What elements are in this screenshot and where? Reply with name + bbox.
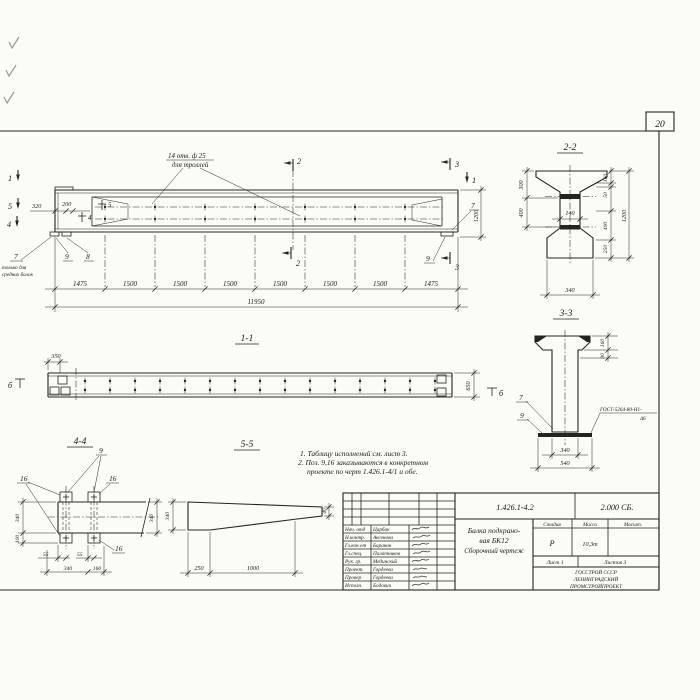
dim-label: 1500 — [173, 280, 188, 288]
dim-label: 250 — [603, 245, 609, 254]
dim-label: 1200 — [621, 209, 628, 222]
dim-label: 250 — [194, 565, 204, 572]
dim-label: 340 — [559, 447, 570, 454]
drawing-title-line: вая БК12 — [479, 536, 508, 545]
margin-check-marks — [4, 37, 19, 103]
position-number: 9 — [520, 411, 524, 420]
position-number: 8 — [86, 252, 90, 261]
position-callout-9: 9 — [517, 411, 542, 433]
section-marker-label: 4 — [88, 214, 92, 222]
section-marker-label: 1 — [8, 174, 12, 183]
dim-label: 30 — [600, 353, 606, 360]
position-number: 7 — [471, 201, 475, 210]
section-marker-label: 1 — [472, 176, 476, 185]
section-view-4-4: 4-4 9 16 — [15, 437, 162, 576]
signature-name: Баранов — [372, 543, 392, 549]
position-number: 7 — [519, 393, 523, 402]
section-marker-label: 5 — [8, 202, 12, 211]
org-name-line: ПРОМСТРОЙПРОЕКТ — [569, 582, 623, 590]
position-number: 7 — [14, 252, 18, 261]
position-callout-7: 7 только для средних балок — [2, 237, 51, 278]
section-view-3-3: 3-3 160 30 7 9 ГОСТ-5264-80-Н1- — [516, 309, 657, 472]
view-marker-label: б — [499, 389, 504, 398]
weld-gost-label: ГОСТ-5264-80-Н1- — [599, 406, 642, 413]
doc-number: 1.426.1-4.2 — [496, 503, 534, 512]
signature-name: Палатников — [372, 551, 401, 557]
signature-name: Мединский — [372, 558, 398, 565]
dim-label: 540 — [560, 460, 570, 467]
dim-label: 340 — [564, 287, 575, 294]
dim-label: 1200 — [473, 209, 480, 222]
section-marker-label: 2 — [296, 259, 300, 268]
section-mark-3: 3 3 — [441, 158, 459, 272]
view-mark-b-right: б — [487, 388, 504, 398]
stage-value: Р — [548, 539, 554, 548]
weld-size-label: Δ6 — [639, 416, 646, 422]
section-mark-2: 2 2 — [282, 157, 301, 268]
signature-role: Исполн. — [344, 583, 362, 589]
column-header-mass: Масса — [582, 522, 597, 528]
position-number: 9 — [426, 254, 430, 263]
drawing-sheet: 20 — [0, 0, 700, 700]
sheets-total: Листов 3 — [603, 560, 627, 566]
dim-label: 650 — [465, 380, 472, 390]
position-number: 16 — [20, 474, 28, 483]
dim-label: 140 — [565, 210, 575, 217]
dim-label: 320 — [31, 203, 42, 210]
note-line: 1. Таблицу исполнений см. лист 3. — [300, 449, 408, 458]
dim-label: 340 — [15, 514, 21, 524]
section-title: 4-4 — [74, 437, 87, 447]
position-callout-16-right: 16 — [99, 474, 119, 494]
position-number: 9 — [99, 446, 103, 455]
position-callout-9-right: 9 — [424, 237, 445, 263]
mass-value: 10,3т — [582, 541, 598, 548]
position-callout-9-left: 9 — [56, 238, 73, 261]
signature-role: Провер. — [344, 575, 362, 581]
page-number: 20 — [655, 120, 665, 130]
dim-label: 340 — [63, 566, 73, 572]
callout-note: средних балок — [2, 271, 34, 278]
weld-designation: ГОСТ-5264-80-Н1- Δ6 — [590, 406, 657, 435]
section-marker-label: 4 — [7, 220, 11, 229]
dim-label: 300 — [518, 179, 525, 190]
main-elevation-view: 14 отв. ф 25 для троллей 320 200 1 5 4 — [2, 152, 486, 312]
dim-label: 160 — [603, 174, 609, 183]
signature-name: Аксенова — [372, 535, 393, 541]
dim-label-total: 11950 — [248, 298, 265, 306]
signature-role: Н.контр. — [344, 535, 365, 541]
position-callout-16-bottom: 16 — [99, 540, 125, 553]
section-title: 5-5 — [241, 440, 254, 450]
signature-role: Проект. — [344, 567, 364, 573]
drawing-title-line: Сборочный чертеж — [464, 547, 524, 555]
notes: 1. Таблицу исполнений см. лист 3. 2. Поз… — [298, 449, 428, 476]
dim-label: 160 — [93, 566, 102, 572]
dim-label: 350 — [50, 353, 61, 360]
section-marker-label: 3 — [454, 263, 459, 272]
section-marker-label: 3 — [454, 160, 459, 169]
holes-purpose-label: для троллей — [172, 161, 209, 169]
dim-label: 1475 — [424, 280, 439, 288]
dim-label: 200 — [62, 201, 72, 208]
section-title: 1-1 — [241, 334, 254, 344]
signature-role: Рук. гр. — [344, 559, 361, 565]
dim-label: 160 — [600, 339, 606, 348]
sheet-frame: 20 — [0, 112, 674, 590]
title-block: 1.426.1-4.2 2.000 СБ. Балка подкрано- ва… — [343, 493, 659, 590]
position-number: 9 — [65, 252, 69, 261]
signature-name: Царбак — [372, 526, 390, 533]
section-mark-5-left: 5 — [8, 198, 20, 211]
dim-label: 1000 — [247, 565, 260, 572]
callout-note: только для — [2, 264, 27, 271]
dim-label: 100 — [15, 535, 21, 544]
drawing-title-line: Балка подкрано- — [467, 526, 521, 535]
dim-label: 340 — [165, 512, 171, 522]
section-view-1-1: 1-1 350 650 — [8, 334, 504, 402]
dim-label: 50 — [603, 192, 609, 198]
dim-label: 55 — [43, 552, 49, 558]
column-header-scale: Масшт. — [623, 522, 642, 528]
signature-name: Гордеева — [372, 574, 393, 581]
signature-name: Бодович — [372, 582, 392, 589]
dim-label: 1500 — [273, 280, 288, 288]
dim-label: 1500 — [323, 280, 338, 288]
position-number: 16 — [115, 544, 123, 553]
org-name-line: ГОССТРОЙ СССР — [574, 568, 618, 576]
dim-label: 1500 — [373, 280, 388, 288]
dim-label: 400 — [603, 222, 609, 231]
column-header-stage: Стадия — [543, 521, 561, 528]
section-mark-1-left: 1 — [8, 170, 20, 183]
signature-role: Гл.кон.от — [344, 543, 367, 549]
dim-label: 40 — [321, 508, 328, 514]
section-view-2-2: 2-2 300 400 140 160 50 400 250 — [518, 143, 634, 299]
section-marker-label: 5 — [108, 201, 112, 209]
dim-label: 1500 — [223, 280, 238, 288]
section-mark-4-left: 4 — [7, 216, 19, 229]
signature-marks — [412, 527, 430, 586]
section-title: 2-2 — [564, 143, 577, 153]
view-mark-b-left: б — [8, 379, 25, 390]
section-marker-label: 2 — [297, 157, 301, 166]
position-callout-8: 8 — [67, 238, 94, 261]
dim-label: 340 — [149, 514, 155, 524]
position-callout-16-left: 16 — [17, 474, 60, 536]
section-title: 3-3 — [559, 309, 573, 319]
section-mark-1-right: 1 — [465, 172, 476, 185]
signature-name: Гордеева — [372, 566, 393, 573]
position-number: 16 — [109, 474, 117, 483]
dim-label: 1475 — [73, 280, 88, 288]
org-name-line: ЛЕНИНГРАДСКИЙ — [573, 575, 619, 583]
section-mark-4-inner: 4 — [78, 212, 92, 222]
note-line: 2. Поз. 9,16 заказываются в конкретном — [298, 458, 428, 467]
signature-role: Гл.спец. — [344, 551, 362, 557]
dim-label: 400 — [518, 207, 525, 217]
view-marker-label: б — [8, 381, 13, 390]
doc-code: 2.000 СБ. — [601, 503, 634, 512]
position-callout-9: 9 — [68, 446, 107, 492]
dim-label: 1500 — [123, 280, 138, 288]
dim-label: 55 — [77, 552, 83, 558]
signature-role: Нач. отд — [344, 526, 366, 533]
holes-count-label: 14 отв. ф 25 — [168, 152, 206, 160]
note-line: проекте по черт 1.426.1-4/1 и обе. — [307, 467, 418, 476]
sheet-number: Лист 1 — [545, 560, 564, 566]
